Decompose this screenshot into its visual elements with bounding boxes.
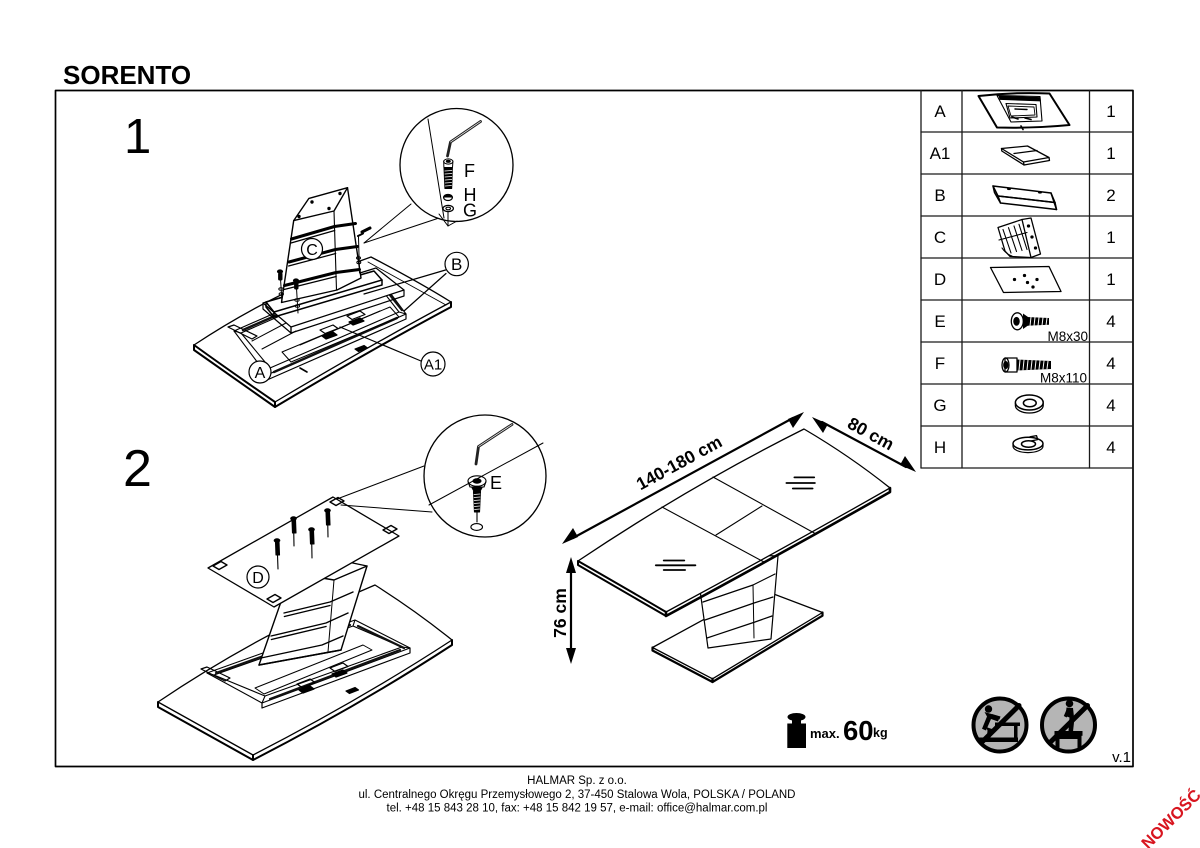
svg-text:G: G <box>933 396 946 415</box>
svg-text:M8x110: M8x110 <box>1040 371 1087 386</box>
svg-text:1: 1 <box>1106 228 1115 247</box>
svg-text:4: 4 <box>1106 438 1115 457</box>
svg-text:60: 60 <box>843 715 874 746</box>
svg-text:76 cm: 76 cm <box>550 588 570 638</box>
svg-text:1: 1 <box>1106 270 1115 289</box>
svg-text:A1: A1 <box>930 144 951 163</box>
svg-text:1: 1 <box>1106 144 1115 163</box>
svg-text:4: 4 <box>1106 354 1115 373</box>
svg-text:B: B <box>451 255 462 274</box>
svg-text:C: C <box>306 242 318 259</box>
svg-text:A: A <box>934 102 946 121</box>
svg-text:2: 2 <box>1106 186 1115 205</box>
svg-text:1: 1 <box>1106 102 1115 121</box>
svg-text:tel. +48 15 843 28 10, fax: +4: tel. +48 15 843 28 10, fax: +48 15 842 1… <box>387 803 768 815</box>
svg-text:kg: kg <box>873 726 888 740</box>
svg-text:B: B <box>934 186 945 205</box>
svg-text:D: D <box>252 570 264 587</box>
svg-text:SORENTO: SORENTO <box>63 60 191 90</box>
svg-text:F: F <box>935 354 945 373</box>
svg-text:D: D <box>934 270 946 289</box>
svg-text:E: E <box>934 312 945 331</box>
svg-text:H: H <box>934 438 946 457</box>
svg-text:max.: max. <box>810 726 840 741</box>
svg-text:4: 4 <box>1106 396 1115 415</box>
svg-text:1: 1 <box>124 110 151 164</box>
svg-text:A: A <box>255 365 266 382</box>
svg-text:v.1: v.1 <box>1112 749 1131 766</box>
svg-text:2: 2 <box>123 440 152 498</box>
svg-text:M8x30: M8x30 <box>1047 329 1088 344</box>
svg-text:NOWOŚĆ: NOWOŚĆ <box>1137 785 1200 848</box>
svg-text:4: 4 <box>1106 312 1115 331</box>
svg-text:A1: A1 <box>424 357 442 374</box>
svg-text:G: G <box>463 201 477 221</box>
svg-text:F: F <box>464 161 475 181</box>
svg-text:C: C <box>934 228 946 247</box>
svg-text:ul. Centralnego Okręgu Przemys: ul. Centralnego Okręgu Przemysłowego 2, … <box>358 789 795 801</box>
svg-text:HALMAR Sp. z o.o.: HALMAR Sp. z o.o. <box>527 775 627 787</box>
svg-text:E: E <box>490 473 502 493</box>
